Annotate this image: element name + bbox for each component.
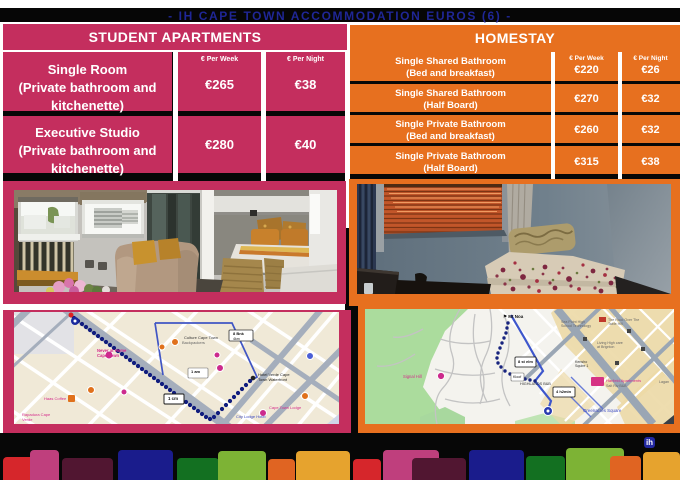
svg-text:Greenacres Square: Greenacres Square	[583, 408, 622, 413]
svg-text:City Lodge Hotel: City Lodge Hotel	[236, 414, 266, 419]
svg-text:at Brignton: at Brignton	[597, 345, 614, 349]
svg-text:8 st elm: 8 st elm	[518, 359, 533, 364]
svg-text:Harfield Apartments: Harfield Apartments	[606, 378, 641, 383]
svg-text:Backpackers: Backpackers	[182, 340, 205, 345]
svg-text:Lagan: Lagan	[659, 380, 669, 384]
svg-text:⚑ Mt Noa: ⚑ Mt Noa	[503, 314, 524, 319]
svg-text:Signal Hill: Signal Hill	[403, 374, 422, 379]
svg-text:4 h2min: 4 h2min	[556, 389, 572, 394]
svg-text:Haas Coffee: Haas Coffee	[44, 396, 67, 401]
svg-text:8 Bnk: 8 Bnk	[233, 331, 245, 336]
svg-text:Town Waterfront: Town Waterfront	[258, 377, 288, 382]
svg-text:Verde: Verde	[22, 417, 33, 422]
svg-text:Cape Town Lodge: Cape Town Lodge	[269, 405, 302, 410]
svg-text:Table Hill: Table Hill	[608, 322, 623, 326]
svg-text:4km: 4km	[233, 337, 240, 341]
svg-text:Kloof: Kloof	[513, 375, 521, 379]
svg-text:School Technology: School Technology	[561, 324, 591, 328]
svg-text:Cape Town: Cape Town	[97, 353, 119, 358]
svg-text:HIGHLANDS B&B: HIGHLANDS B&B	[520, 382, 551, 386]
svg-text:1 cm: 1 cm	[168, 396, 178, 401]
svg-text:Salt Riv B&B: Salt Riv B&B	[606, 384, 627, 388]
svg-text:1 am: 1 am	[191, 369, 201, 374]
svg-text:Squire 1: Squire 1	[575, 364, 588, 368]
